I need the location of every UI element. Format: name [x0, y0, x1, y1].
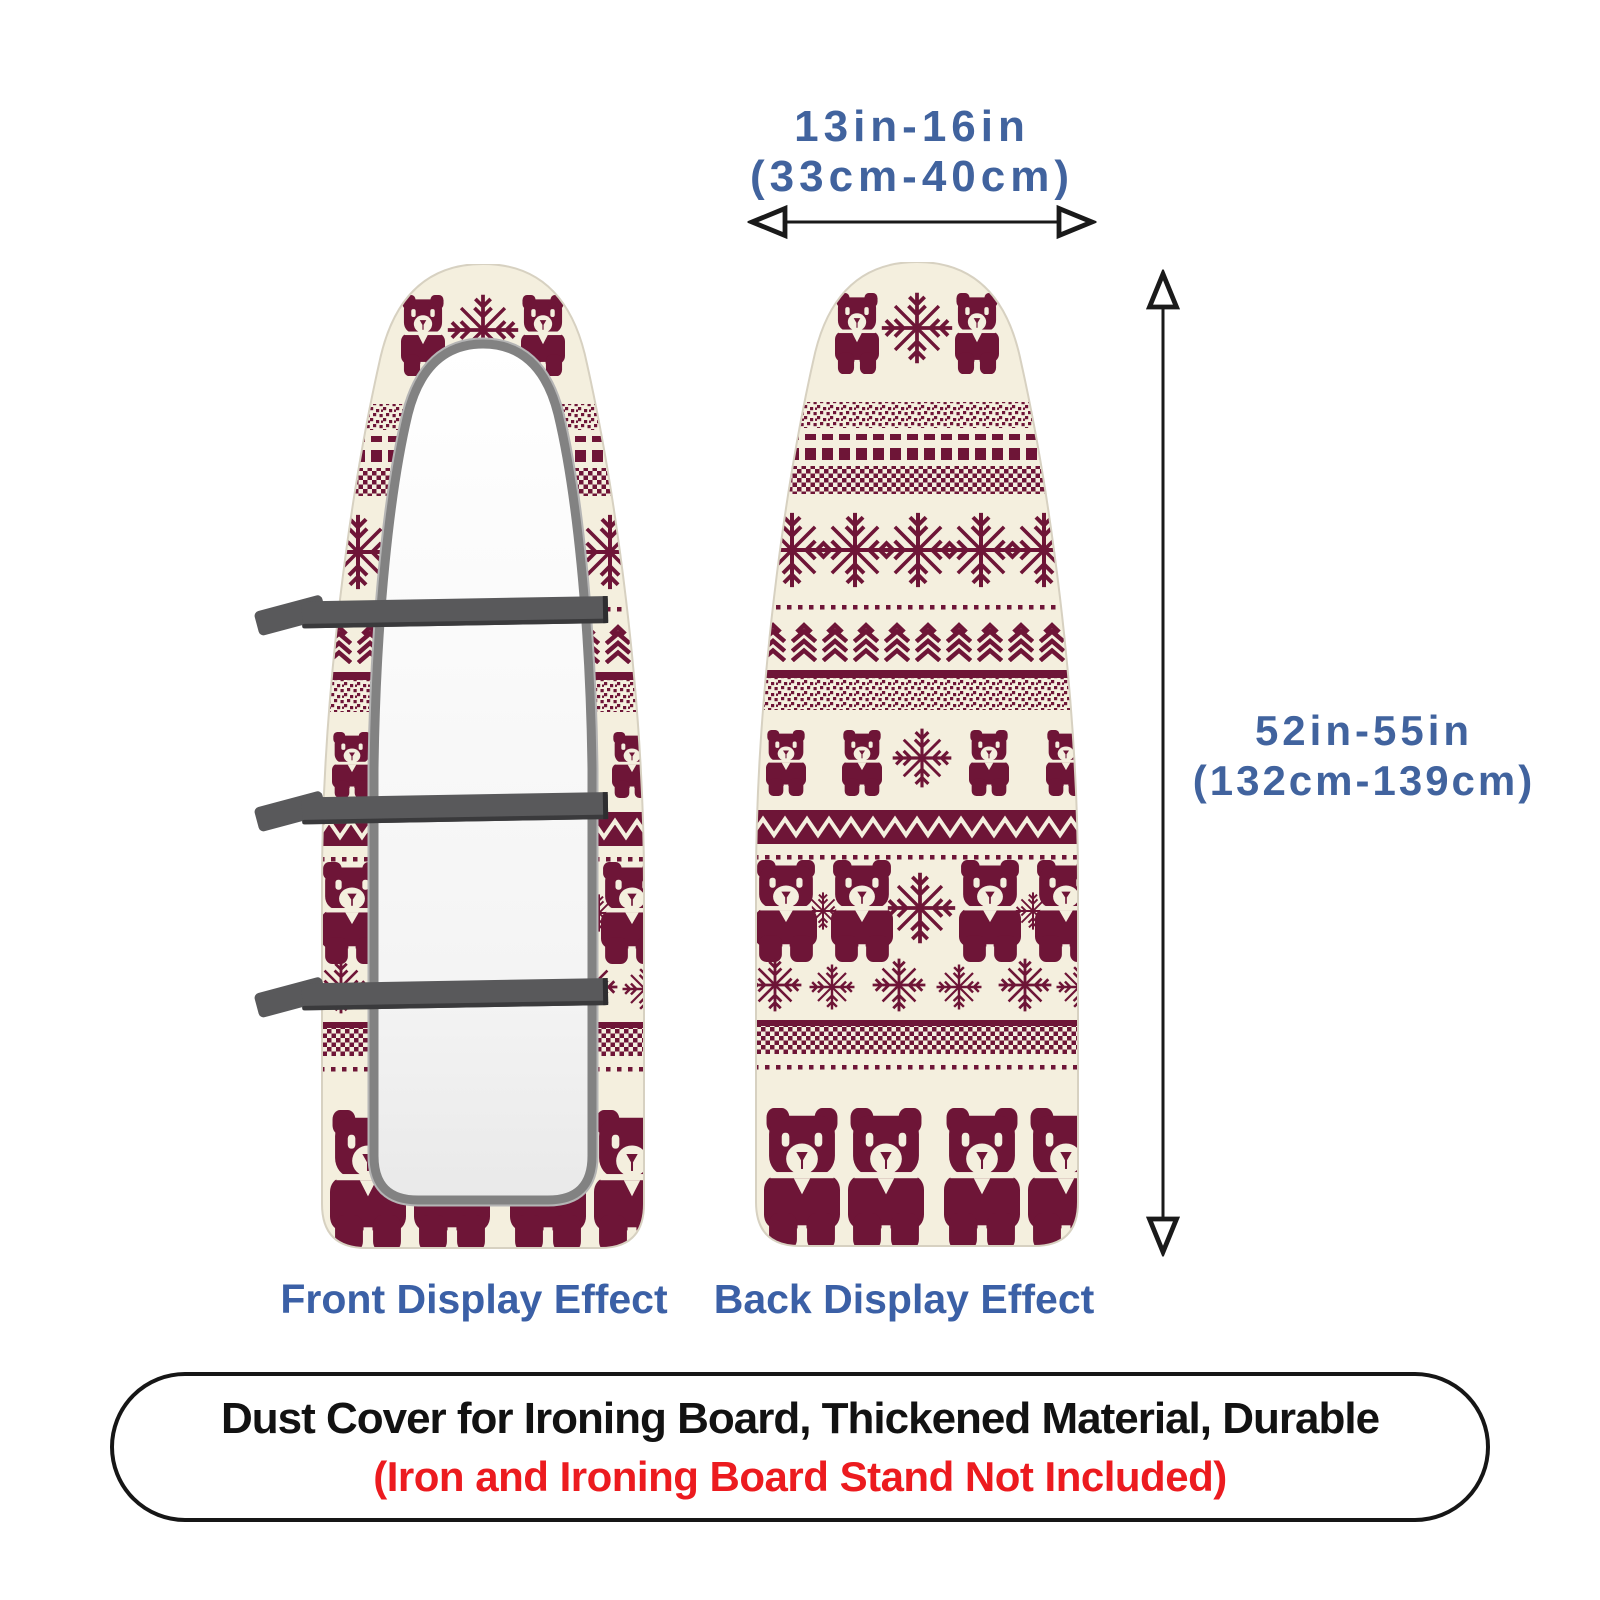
height-cm: (132cm-139cm)	[1168, 756, 1560, 806]
caption-title: Dust Cover for Ironing Board, Thickened …	[221, 1394, 1379, 1444]
product-diagram: 13in-16in (33cm-40cm)	[0, 0, 1600, 1600]
back-cover-graphic	[752, 262, 1082, 1248]
height-inches: 52in-55in	[1168, 706, 1560, 756]
front-cover-graphic	[248, 264, 648, 1250]
height-dimension-label: 52in-55in (132cm-139cm)	[1168, 706, 1560, 806]
caption-box: Dust Cover for Ironing Board, Thickened …	[110, 1372, 1490, 1522]
back-view-label: Back Display Effect	[708, 1276, 1100, 1323]
caption-note: (Iron and Ironing Board Stand Not Includ…	[373, 1453, 1226, 1501]
front-view-label: Front Display Effect	[278, 1276, 670, 1323]
cover-opening	[374, 344, 592, 1200]
